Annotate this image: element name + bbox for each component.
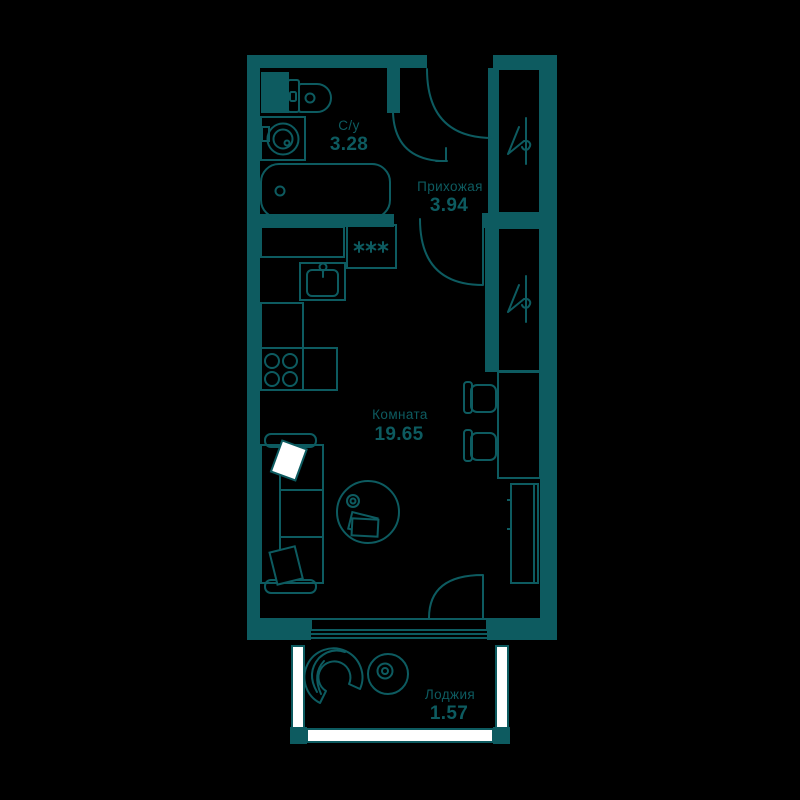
- toilet-nook-wall: [387, 68, 400, 113]
- chair-icon: [464, 382, 496, 413]
- balcony-corner-left: [290, 727, 307, 744]
- snowflake-icon: [367, 242, 376, 252]
- stove-icon: [261, 348, 303, 390]
- kitchen-sink-icon: [300, 263, 345, 300]
- wardrobe-bottom: [498, 228, 540, 371]
- room-door-arc: [420, 219, 483, 285]
- wardrobe-top: [498, 69, 540, 213]
- top-wall-left: [247, 55, 427, 68]
- armchair-icon: [304, 648, 362, 703]
- entrance-door-arc: [427, 69, 493, 138]
- snowflake-icon: [379, 242, 388, 252]
- bathroom-area-label: 3.28: [330, 134, 368, 155]
- balcony-window-right: [496, 646, 508, 728]
- chair-icon: [464, 430, 496, 461]
- counter-top: [261, 227, 344, 257]
- bathroom-door-arc: [393, 113, 447, 161]
- bathtub-icon: [261, 164, 390, 218]
- wardrobe2-side-wall: [485, 228, 498, 372]
- balcony-window-left: [292, 646, 304, 728]
- room-window-lines: [311, 634, 487, 638]
- living-room-name-label: Комната: [372, 407, 428, 422]
- snowflake-icon: [355, 242, 364, 252]
- counter-right-of-stove: [303, 348, 337, 390]
- room-window-frame: [311, 619, 487, 630]
- sofa-icon: [261, 434, 323, 593]
- doors: [393, 69, 493, 618]
- hanger-icon: [508, 118, 530, 164]
- room-furniture: [261, 372, 540, 593]
- hall-room-wall: [482, 213, 557, 228]
- toilet-icon: [288, 80, 331, 112]
- vent-shaft: [261, 72, 289, 113]
- desk: [498, 372, 540, 478]
- cup-icon: [378, 664, 393, 679]
- bottom-wall-right: [487, 618, 557, 640]
- tv-stand: [507, 484, 538, 583]
- counter-left: [261, 303, 303, 348]
- pillow-icon: [270, 546, 303, 584]
- living-room-area-label: 19.65: [374, 424, 423, 445]
- walls: [247, 55, 557, 744]
- floor-plan: С/у 3.28 Прихожая 3.94 Комната 19.65 Лод…: [0, 0, 800, 800]
- washing-machine-icon: [261, 117, 305, 160]
- balcony-window-front: [307, 729, 493, 742]
- hallway-name-label: Прихожая: [417, 179, 483, 194]
- hallway-area-label: 3.94: [430, 195, 468, 216]
- balcony-corner-right: [493, 727, 510, 744]
- book-icon: [352, 518, 379, 536]
- hanger-icon: [508, 276, 530, 322]
- kitchen-fixtures: [261, 225, 396, 390]
- wardrobe1-side-wall: [488, 68, 498, 214]
- fridge-icon: [347, 225, 396, 268]
- left-wall: [247, 55, 260, 640]
- loggia-name-label: Лоджия: [425, 687, 475, 702]
- loggia-furniture: [304, 648, 408, 703]
- balcony-door-arc: [429, 575, 483, 618]
- right-wall: [540, 55, 557, 640]
- loggia-area-label: 1.57: [430, 703, 468, 724]
- side-table-icon: [368, 654, 408, 694]
- coffee-table-icon: [337, 481, 399, 543]
- floor-plan-canvas: С/у 3.28 Прихожая 3.94 Комната 19.65 Лод…: [0, 0, 800, 800]
- cup-icon: [347, 495, 359, 507]
- bottom-wall-left: [247, 618, 311, 640]
- windows: [292, 619, 508, 742]
- bathroom-name-label: С/у: [338, 118, 359, 133]
